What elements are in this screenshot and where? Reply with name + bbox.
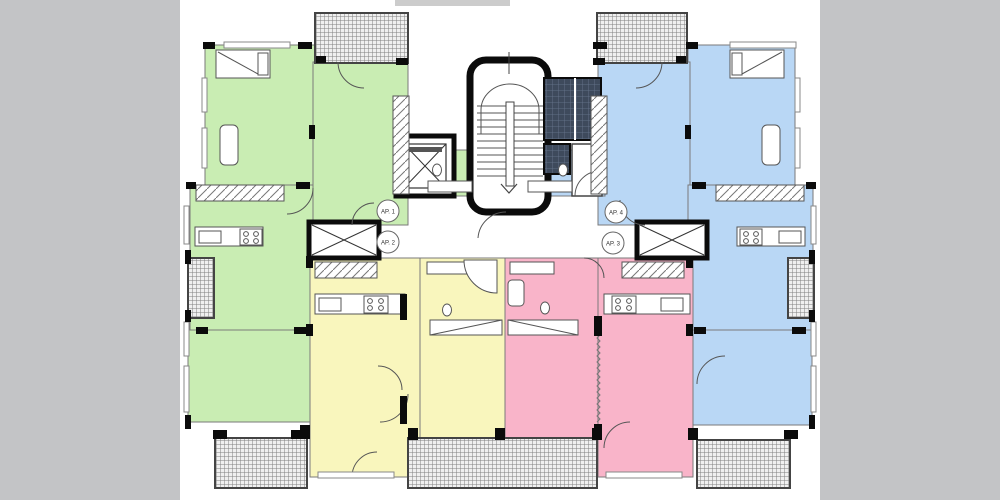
svg-text:AP. 2: AP. 2 (381, 241, 396, 247)
staircase (470, 52, 548, 238)
bed-green (216, 50, 270, 78)
svg-text:AP. 1: AP. 1 (381, 210, 396, 216)
balcony-top-right (597, 13, 687, 63)
svg-text:AP. 4: AP. 4 (609, 211, 624, 217)
left-gray-band (0, 0, 180, 500)
wardrobe-green-tall (393, 96, 409, 194)
apartment-label-ap2: AP. 2 (377, 231, 399, 253)
floor-plan-page: AP. 1 AP. 2 AP. 4 AP. 3 (0, 0, 1000, 500)
stair-spine (506, 102, 514, 186)
apartment-label-ap4: AP. 4 (605, 201, 627, 223)
bathtub-green (220, 125, 238, 165)
bed-blue (730, 50, 784, 78)
apartment-label-ap3: AP. 3 (602, 232, 624, 254)
corridor-shaft-right (637, 222, 707, 258)
wardrobe-green-row (196, 185, 284, 201)
balcony-bottom-left (215, 438, 307, 488)
top-crop-strip (395, 0, 510, 6)
balcony-top-left (315, 13, 408, 63)
right-gray-band (820, 0, 1000, 500)
wardrobe-blue-tall (591, 96, 607, 194)
apartment-label-ap1: AP. 1 (377, 200, 399, 222)
balcony-bottom-center (408, 438, 597, 488)
loggia-right (788, 258, 814, 318)
floor-plan-canvas: AP. 1 AP. 2 AP. 4 AP. 3 (0, 0, 1000, 500)
kitchen-green (195, 227, 263, 246)
svg-text:AP. 3: AP. 3 (606, 242, 621, 248)
bathtub-blue (762, 125, 780, 165)
kitchen-blue (737, 227, 805, 246)
balcony-bottom-right (697, 440, 790, 488)
wardrobe-blue-row (716, 185, 804, 201)
corridor-shaft-left (309, 222, 379, 258)
loggia-left (188, 258, 214, 318)
